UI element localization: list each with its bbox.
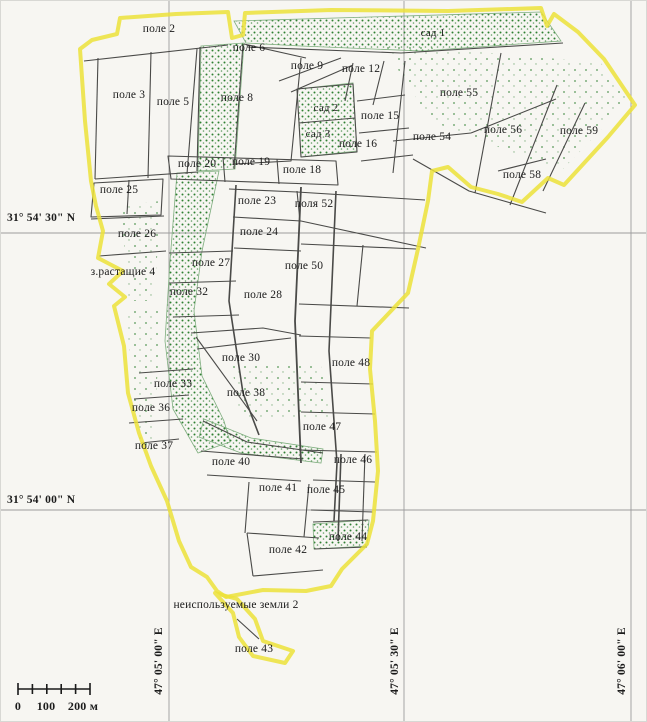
scale-bar [18,683,90,695]
field-map-canvas: поле 2поле 6поле 9поле 12сад 1поле 3поле… [0,0,647,722]
vegetation-areas [121,12,629,549]
map-drawing [1,1,647,722]
